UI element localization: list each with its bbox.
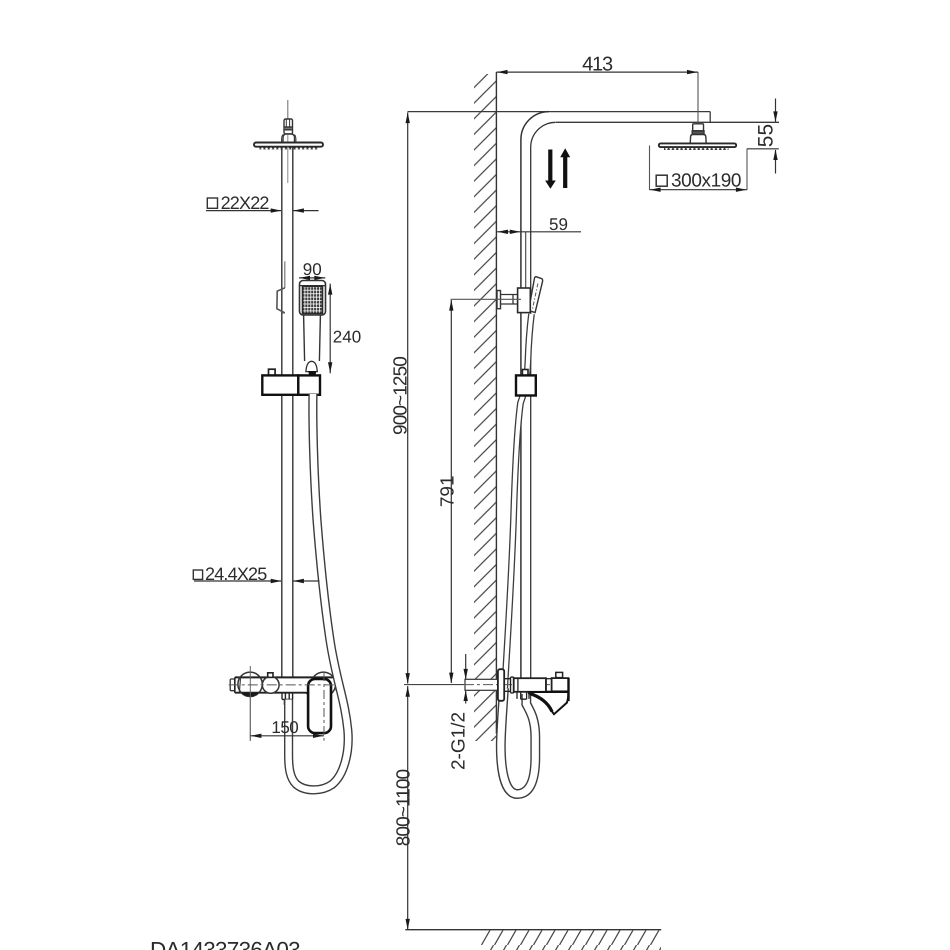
svg-text:59: 59 (549, 215, 568, 234)
svg-text:55: 55 (755, 124, 778, 147)
svg-text:DA1433736A03: DA1433736A03 (150, 938, 300, 950)
svg-text:240: 240 (333, 327, 361, 346)
svg-text:150: 150 (271, 718, 298, 737)
svg-text:900~1250: 900~1250 (390, 357, 411, 435)
svg-text:791: 791 (438, 475, 459, 507)
svg-text:22X22: 22X22 (221, 193, 270, 213)
svg-text:90: 90 (303, 260, 322, 279)
svg-text:413: 413 (582, 54, 613, 76)
svg-text:800~1100: 800~1100 (394, 769, 415, 846)
svg-text:300x190: 300x190 (671, 170, 741, 191)
svg-text:2-G1/2: 2-G1/2 (448, 712, 469, 770)
